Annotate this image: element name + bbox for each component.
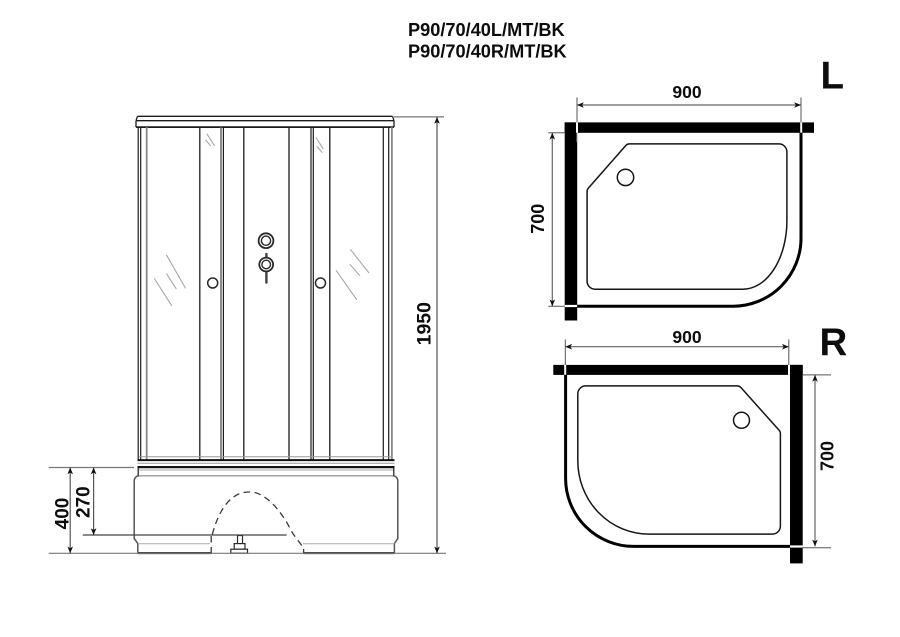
svg-text:700: 700 — [528, 204, 548, 234]
svg-text:900: 900 — [672, 82, 701, 102]
svg-text:P90/70/40R/MT/BK: P90/70/40R/MT/BK — [408, 41, 567, 61]
svg-text:270: 270 — [73, 486, 94, 518]
svg-text:L: L — [821, 55, 845, 98]
svg-text:400: 400 — [52, 498, 73, 530]
svg-text:P90/70/40L/MT/BK: P90/70/40L/MT/BK — [408, 20, 565, 40]
svg-text:R: R — [820, 321, 848, 364]
svg-text:900: 900 — [672, 327, 701, 347]
svg-text:700: 700 — [818, 441, 838, 471]
svg-text:1950: 1950 — [414, 302, 436, 346]
